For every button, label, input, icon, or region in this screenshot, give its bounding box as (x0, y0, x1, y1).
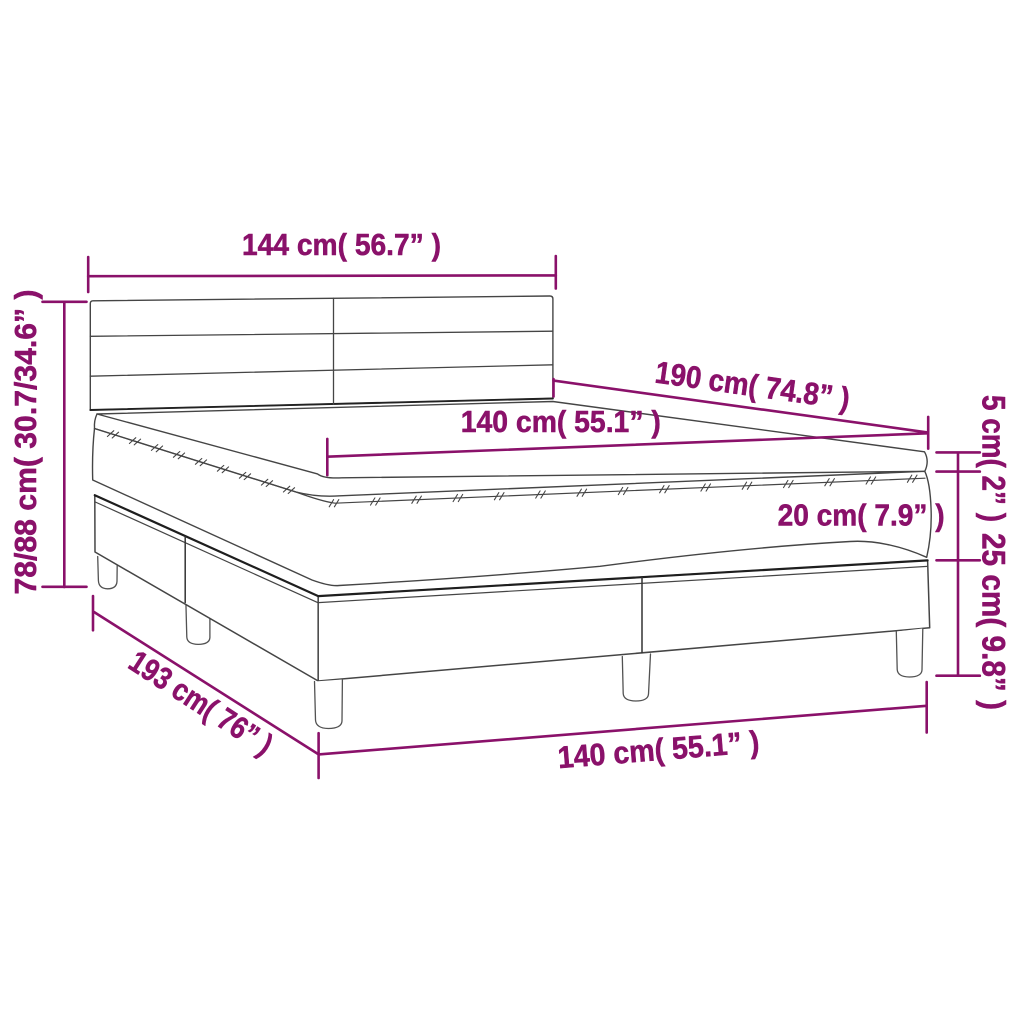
svg-text:5 cm( 2” ): 5 cm( 2” ) (976, 395, 1012, 522)
svg-text:144 cm( 56.7” ): 144 cm( 56.7” ) (242, 227, 441, 262)
svg-text:25 cm( 9.8” ): 25 cm( 9.8” ) (976, 533, 1012, 710)
svg-text:140 cm( 55.1” ): 140 cm( 55.1” ) (461, 404, 661, 439)
svg-text:193 cm( 76” ): 193 cm( 76” ) (123, 644, 280, 763)
svg-text:78/88 cm( 30.7/34.6” ): 78/88 cm( 30.7/34.6” ) (8, 290, 43, 595)
svg-text:20 cm( 7.9” ): 20 cm( 7.9” ) (778, 498, 945, 533)
